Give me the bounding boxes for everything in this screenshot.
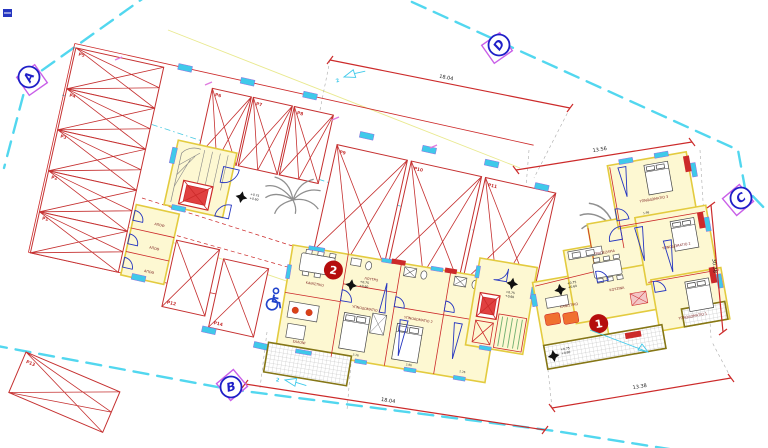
dimension-bottom-right: 13.38 — [549, 374, 734, 412]
svg-text:18.04: 18.04 — [439, 74, 454, 83]
elevator — [476, 293, 500, 320]
grid-marker-C: C — [723, 185, 754, 216]
level-marker: +0.75 +0.60 — [234, 189, 260, 207]
level-lower: +0.60 — [249, 196, 259, 202]
dimension-bottom: 18.04 — [242, 380, 548, 434]
wheelchair-icon — [265, 287, 284, 312]
bed — [644, 161, 673, 195]
site-plan-canvas: P5 P4 P3 P2 P1 P6 — [0, 0, 768, 448]
svg-text:2: 2 — [275, 377, 280, 384]
svg-text:13.56: 13.56 — [592, 146, 607, 154]
grid-marker-B: B — [217, 370, 248, 401]
section-arrow: 2 — [334, 66, 366, 84]
bed — [392, 323, 424, 363]
svg-text:18.04: 18.04 — [381, 397, 396, 405]
bed — [685, 278, 714, 312]
bed — [339, 312, 371, 352]
floor-plan-drawing: P5 P4 P3 P2 P1 P6 — [0, 0, 768, 448]
parking-stall: P14 — [209, 259, 269, 337]
stair-core — [159, 139, 242, 222]
parking-stall: P13 — [9, 352, 120, 432]
apartment-unit-1: ΚΑΘΙΣΤΙΚΟ ΤΡΑΠΕΖΑΡΙΑ ΚΟΥΖΙΝΑ ΥΠΝΟΔΩΜΑΤΙΟ… — [510, 145, 733, 369]
svg-text:13.38: 13.38 — [632, 383, 647, 391]
titleblock-fragment — [3, 9, 12, 17]
dimension-top: 18.04 — [327, 56, 573, 112]
grid-marker-D: D — [482, 33, 513, 64]
svg-text:2: 2 — [335, 78, 341, 85]
